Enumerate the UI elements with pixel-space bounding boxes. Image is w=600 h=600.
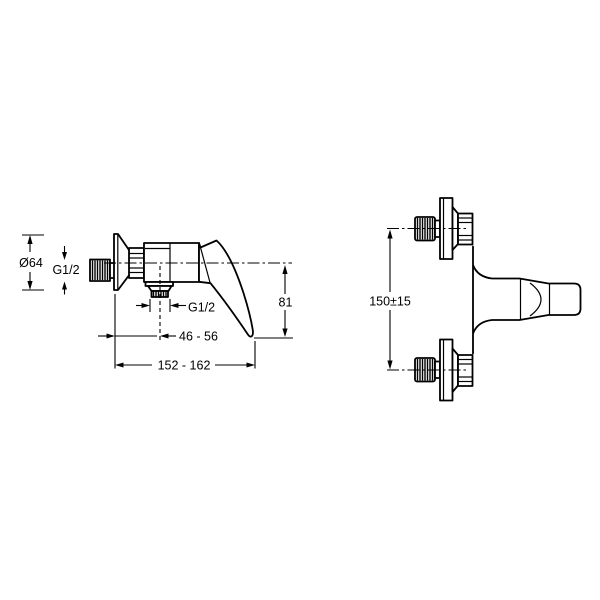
dim-label-escutcheon-diameter: Ø64	[19, 256, 43, 270]
side-view: Ø64 G1/2 G1/2 46 -	[19, 234, 293, 373]
escutcheon	[114, 234, 130, 290]
body-silhouette	[473, 247, 581, 354]
dim-label-outlet-offset: 46 - 56	[179, 330, 218, 344]
shower-mixer-drawing: Ø64 G1/2 G1/2 46 -	[0, 0, 600, 600]
dim-label-inlet-thread: G1/2	[52, 263, 79, 277]
dim-label-handle-drop: 81	[279, 296, 293, 310]
dim-escutcheon-diameter: Ø64	[19, 235, 44, 290]
front-view: 150±15	[369, 198, 580, 401]
dim-handle-drop: 81	[254, 265, 293, 338]
dim-projection: 152 - 162	[115, 341, 255, 373]
dim-label-projection: 152 - 162	[158, 359, 211, 373]
dim-outlet-thread: G1/2	[136, 299, 215, 315]
dim-connection-spacing: 150±15	[369, 230, 411, 370]
lever-handle	[199, 241, 253, 337]
dim-outlet-offset: 46 - 56	[98, 330, 218, 344]
dim-label-outlet-thread: G1/2	[188, 301, 215, 315]
technical-drawing-page: Ø64 G1/2 G1/2 46 -	[0, 0, 600, 600]
dim-inlet-thread: G1/2	[52, 246, 79, 295]
outlet-spout	[146, 282, 174, 297]
dim-label-connection-spacing: 150±15	[369, 295, 411, 309]
